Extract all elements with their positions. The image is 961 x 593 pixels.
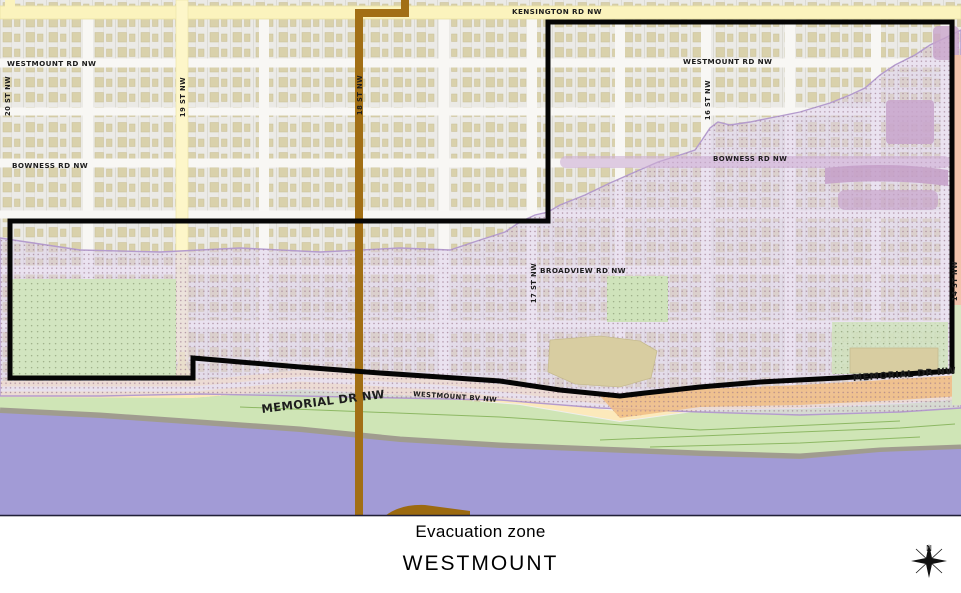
street-label-18st: 18 ST NW xyxy=(356,75,364,115)
street-label-bowness-right: BOWNESS RD NW xyxy=(713,155,787,163)
street-label-20st: 20 ST NW xyxy=(4,76,12,116)
street-label-16st: 16 ST NW xyxy=(704,80,712,120)
street-label-kensington: KENSINGTON RD NW xyxy=(512,7,602,16)
school-building xyxy=(548,336,657,387)
street-label-14st: 14 ST NW xyxy=(951,261,959,301)
street-label-17st: 17 ST NW xyxy=(530,263,538,303)
caption-zone-name: WESTMOUNT xyxy=(0,549,961,579)
road-stub xyxy=(5,0,15,18)
compass-star-icon xyxy=(911,544,947,578)
map-svg: KENSINGTON RD NW WESTMOUNT RD NW WESTMOU… xyxy=(0,0,961,517)
map-canvas: KENSINGTON RD NW WESTMOUNT RD NW WESTMOU… xyxy=(0,0,961,517)
caption-zone-label: Evacuation zone xyxy=(0,519,961,545)
street-label-westmount-rd-left: WESTMOUNT RD NW xyxy=(7,59,96,68)
street-label-19st: 19 ST NW xyxy=(179,77,187,117)
street-label-westmount-rd-right: WESTMOUNT RD NW xyxy=(683,57,772,66)
street-label-broadview: BROADVIEW RD NW xyxy=(540,266,626,275)
map-caption: Evacuation zone WESTMOUNT xyxy=(0,519,961,579)
street-label-bowness-left: BOWNESS RD NW xyxy=(12,161,88,170)
kensington-road xyxy=(0,6,961,19)
compass-rose: N xyxy=(902,535,958,591)
evacuation-map-page: KENSINGTON RD NW WESTMOUNT RD NW WESTMOU… xyxy=(0,0,961,593)
